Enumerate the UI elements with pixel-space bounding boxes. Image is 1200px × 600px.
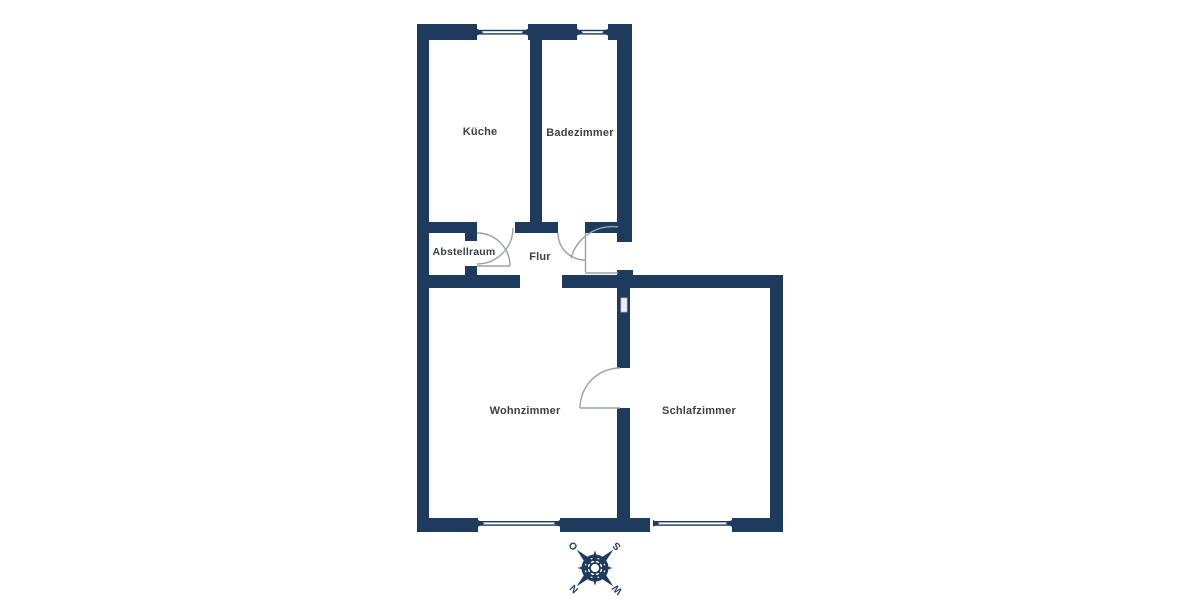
window-badezimmer <box>577 29 608 36</box>
wall-bottom-right-block <box>732 518 783 532</box>
wall-corridor-bottom-left <box>417 275 520 288</box>
compass-letter-east: O <box>567 539 580 552</box>
wall-schlafzimmer-top <box>562 275 783 288</box>
wall-divider-kueche-bad <box>530 40 542 222</box>
compass-letter-south: S <box>611 539 624 552</box>
room-label-abstellraum: Abstellraum <box>433 246 496 258</box>
wall-kueche-bottom <box>417 222 477 233</box>
wall-flur-top-stub <box>515 222 558 233</box>
window-schlafzimmer <box>653 520 732 527</box>
jamb-abstellraum-top <box>465 233 477 241</box>
jamb-entry <box>617 270 633 276</box>
wall-top-mid-block <box>528 24 577 40</box>
wall-divider-wohn-schlaf-lower <box>617 408 630 518</box>
floor-plan-page: Küche Badezimmer Abstellraum Flur Wohnzi… <box>0 0 1200 600</box>
compass-letter-west: W <box>610 582 625 597</box>
room-label-flur: Flur <box>529 251 551 263</box>
wall-bottom-left-block <box>417 518 478 532</box>
walls <box>417 24 783 532</box>
room-label-schlafzimmer: Schlafzimmer <box>662 405 736 417</box>
room-label-badezimmer: Badezimmer <box>546 127 614 139</box>
wall-outer-right <box>770 288 783 518</box>
room-labels: Küche Badezimmer Abstellraum Flur Wohnzi… <box>433 126 737 417</box>
room-label-kueche: Küche <box>463 126 498 138</box>
door-schlafzimmer-arc <box>580 368 620 408</box>
room-label-wohnzimmer: Wohnzimmer <box>490 405 561 417</box>
wall-notch <box>621 298 627 312</box>
window-kueche <box>477 29 528 36</box>
floor-plan: Küche Badezimmer Abstellraum Flur Wohnzi… <box>0 0 1200 600</box>
wall-right-upper <box>617 24 632 242</box>
wall-bottom-mid-block <box>560 518 650 532</box>
wall-top-left-block <box>417 24 477 40</box>
window-wohnzimmer <box>478 520 560 527</box>
